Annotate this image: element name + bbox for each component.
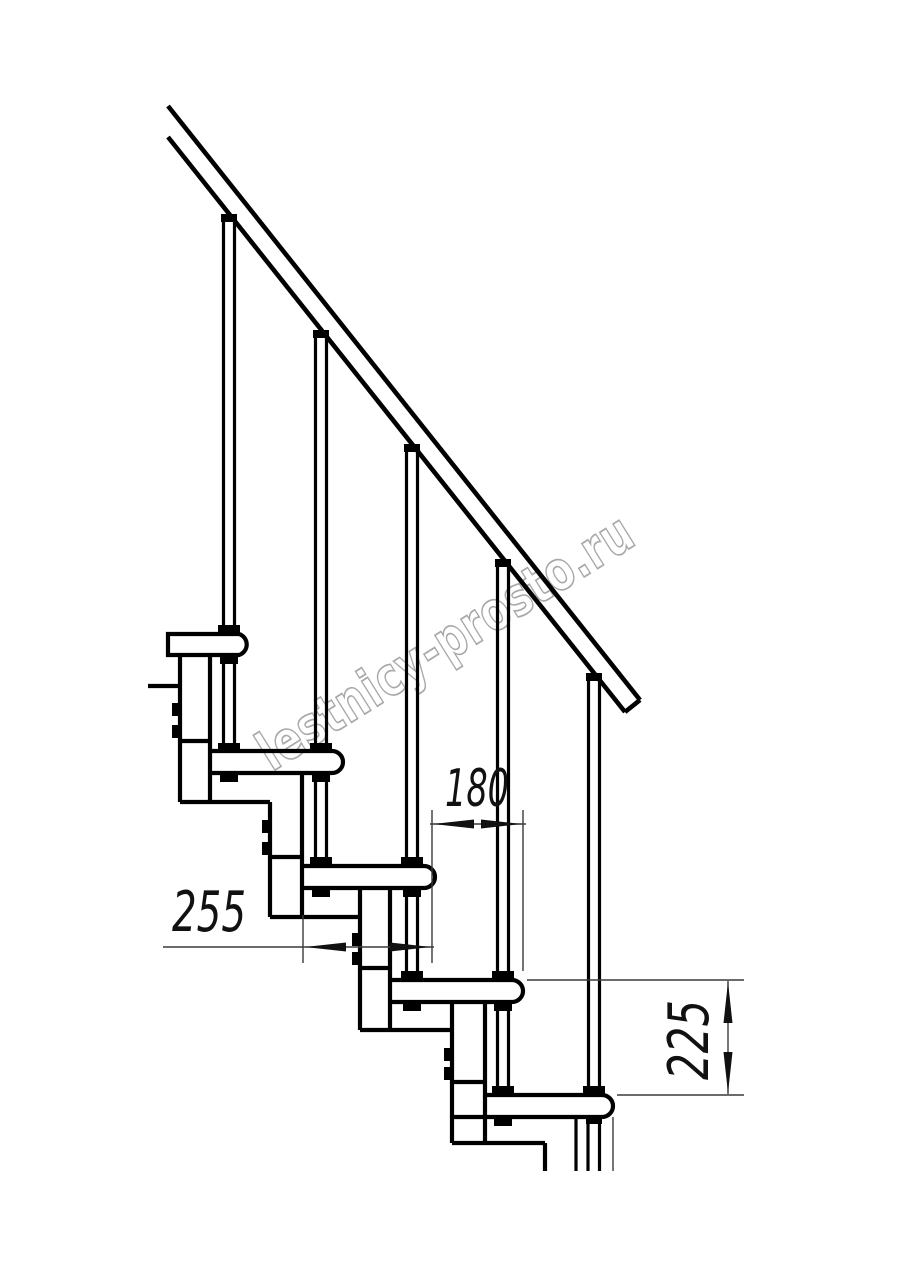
dimension-255-value: 255 — [172, 880, 246, 945]
tread-3 — [302, 866, 435, 888]
watermark-text: lestnicy-prosto.ru — [246, 501, 646, 783]
baluster-1-top-cap — [221, 214, 237, 222]
baluster-2-top-cap — [313, 330, 329, 338]
support-module-1-box — [180, 655, 210, 802]
staircase-technical-drawing: lestnicy-prosto.ru — [0, 0, 914, 1280]
support-module-1-tab-lower — [172, 725, 180, 738]
baluster-2 — [310, 330, 332, 897]
support-module-3-box — [360, 888, 390, 1030]
baluster-4-top-cap — [495, 559, 511, 567]
support-post-2-tube — [316, 773, 327, 857]
tread-1 — [168, 634, 247, 655]
handrail — [168, 106, 640, 712]
baluster-5-tube — [589, 681, 600, 1086]
handrail-top-edge — [168, 106, 640, 700]
handrail-end-cap — [625, 700, 640, 712]
support-module-2-box — [270, 773, 302, 917]
support-module-4-box — [452, 1002, 485, 1143]
baluster-1-tube — [224, 222, 235, 625]
dimension-tread-depth: 255 — [163, 880, 434, 963]
dimension-180-arrow-right — [481, 820, 522, 829]
support-module-3-tab-upper — [352, 933, 360, 946]
dimension-225-value: 225 — [657, 1000, 722, 1080]
tread-4 — [390, 980, 523, 1002]
support-module-2-tab-upper — [262, 820, 270, 833]
support-module-3-tab-lower — [352, 952, 360, 965]
staircase-drawing-page: lestnicy-prosto.ru — [0, 0, 914, 1280]
dimension-180-value: 180 — [445, 759, 509, 819]
baluster-3-top-cap — [404, 444, 420, 452]
support-post-4-tube — [498, 1002, 509, 1086]
baluster-1 — [218, 214, 240, 782]
dimension-step-run: 180 — [430, 759, 526, 971]
tread-5 — [452, 1095, 613, 1117]
dimension-180-arrow-left — [433, 820, 474, 829]
dimension-225-arrow-top — [724, 982, 733, 1023]
support-post-1-tube — [224, 655, 235, 743]
support-module-2-tab-lower — [262, 842, 270, 855]
support-post-5-tube — [576, 1117, 600, 1171]
support-module-4-tab-upper — [444, 1048, 452, 1061]
support-post-3-tube — [407, 888, 418, 971]
dimension-255-arrow-left — [305, 943, 346, 952]
watermark: lestnicy-prosto.ru — [246, 501, 646, 783]
baluster-5-top-cap — [586, 673, 602, 681]
support-module-4-tab-lower — [444, 1067, 452, 1080]
dimension-step-rise: 225 — [527, 980, 744, 1171]
dimension-255-arrow-right — [390, 943, 431, 952]
support-module-1-tab-upper — [172, 703, 180, 716]
baluster-3 — [401, 444, 423, 1011]
dimension-225-arrow-bottom — [724, 1052, 733, 1093]
